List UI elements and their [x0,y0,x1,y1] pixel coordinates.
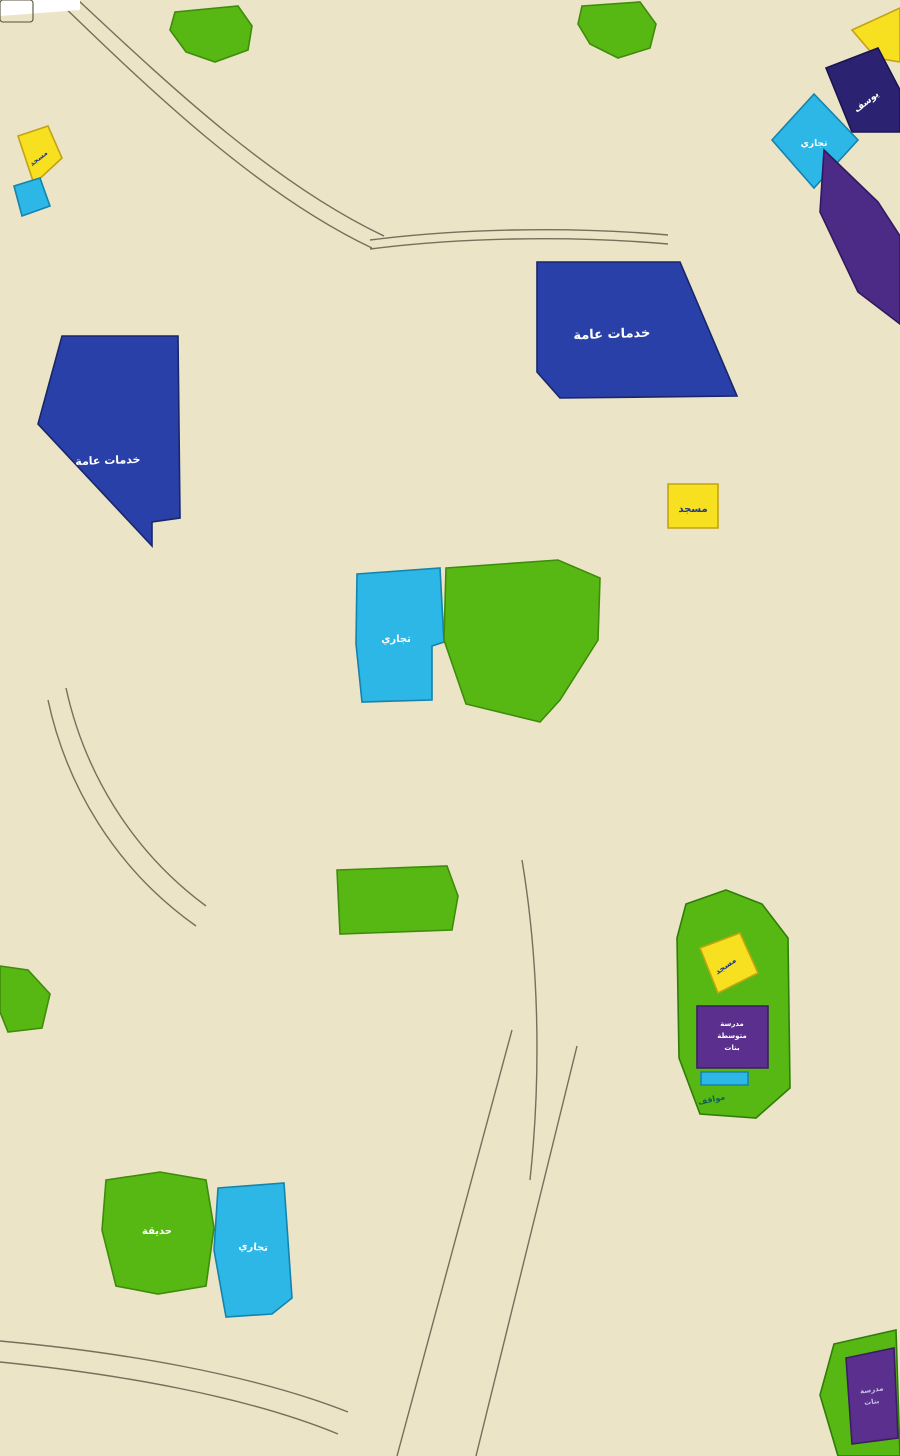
zone-label: مسجد [678,504,707,515]
zone-commercial-bottom-left: تجاري [214,1183,292,1317]
zone-label: بنات [724,1044,740,1052]
zone-park-bottom-left: حديقة [102,1172,214,1294]
zone-label: تجاري [381,634,411,645]
zone-label: مدرسة [720,1020,744,1028]
map-viewport: يوسفتجاريخدمات عامةخدمات عامةمسجدمسجدتجا… [0,0,900,1456]
plot-map-canvas: يوسفتجاريخدمات عامةخدمات عامةمسجدمسجدتجا… [0,0,900,1456]
zone-commercial-center: تجاري [356,568,444,702]
school-bottom-right-inner [846,1348,898,1444]
zone-label: خدمات عامة [75,453,141,468]
zone-cyan-strip-in-compound [701,1072,748,1085]
zone-label: متوسطة [717,1032,747,1040]
cyan-strip-in-compound [701,1072,748,1085]
zone-school-in-compound: مدرسةمتوسطةبنات [697,1006,768,1068]
zone-green-quad-center [337,866,458,934]
zone-school-bottom-right-inner: مدرسةبنات [846,1348,898,1444]
zone-label: تجاري [801,139,828,149]
zone-label: خدمات عامة [573,326,651,344]
green-quad-center [337,866,458,934]
zone-label: تجاري [238,1241,269,1254]
zone-label: حديقة [142,1226,172,1237]
zone-mosque-center: مسجد [668,484,718,528]
